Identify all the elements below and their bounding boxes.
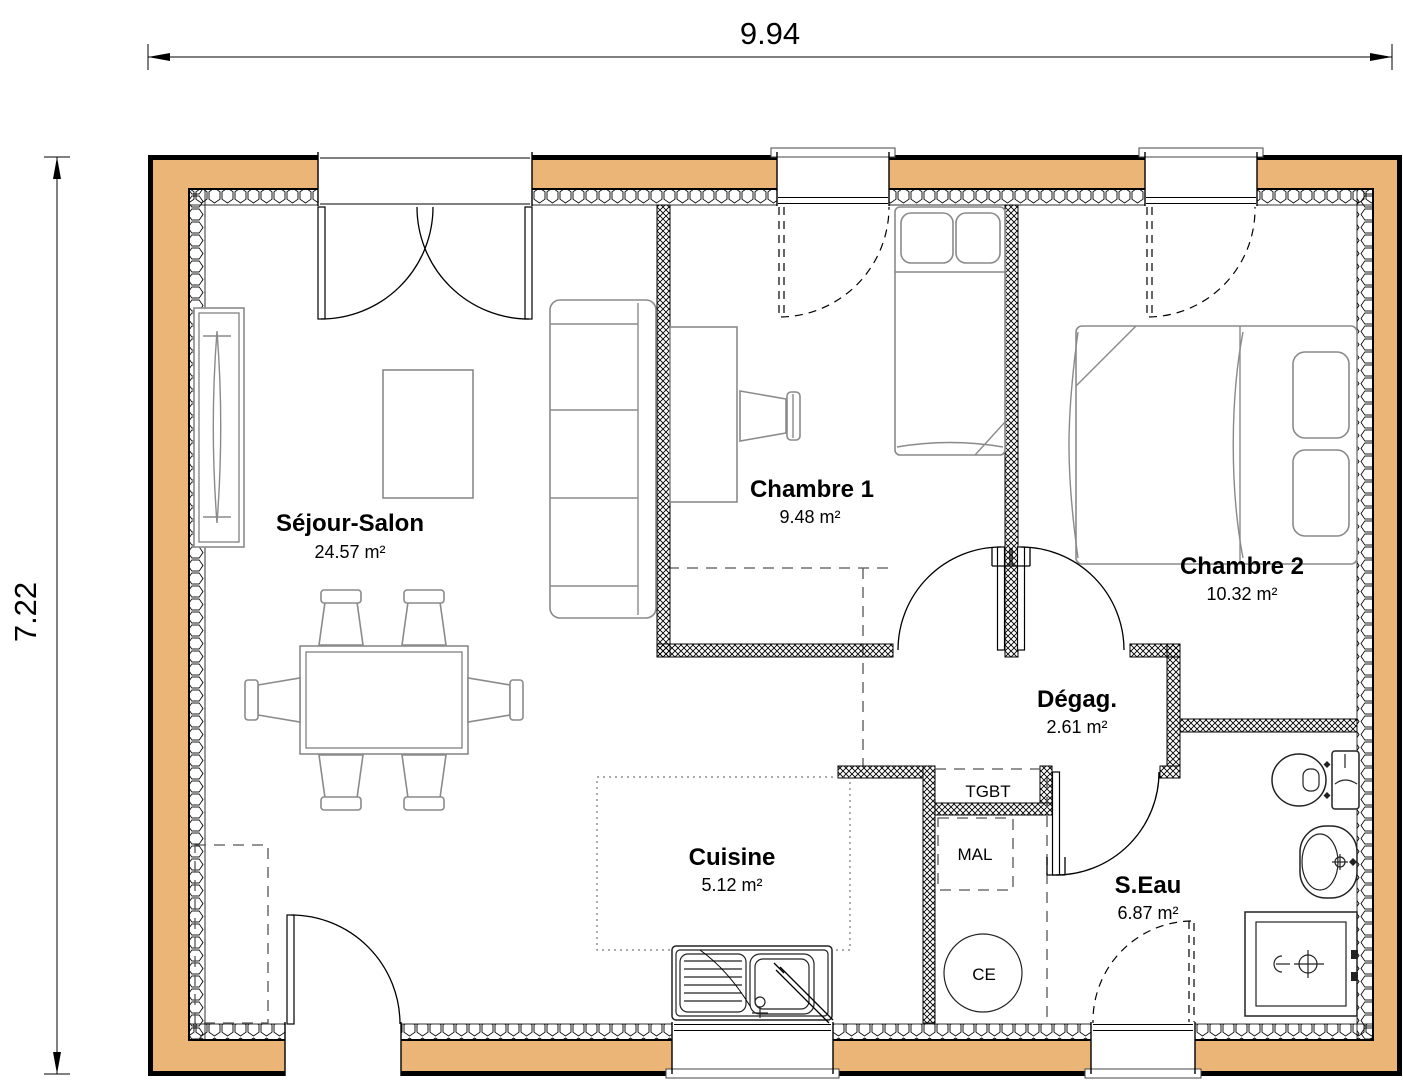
window-sill-seau [1085,1069,1201,1078]
room-area-cuisine: 5.12 m² [701,875,762,895]
partition-cuisine-tech [923,766,935,1023]
dining-chair [402,590,446,645]
dashed-guides [668,568,893,766]
partition-seau-door-jamb-right [1160,766,1180,778]
window-sill-chambre1 [771,148,895,157]
opening-window-chambre2 [1145,150,1257,207]
opening-entrance-door [285,1022,401,1078]
width-dim-arrow-right [1370,53,1392,61]
wall-band-left [148,155,189,1076]
tv-cabinet [194,308,244,547]
door-salle-eau [1047,772,1159,875]
partition-degagement-east [1167,644,1180,766]
room-area-sejour: 24.57 m² [314,542,385,562]
sofa [550,300,656,618]
dining-chair [402,755,446,810]
room-label-sejour: Séjour-Salon [276,510,424,537]
room-label-chambre1: Chambre 1 [750,476,874,503]
fixtures [672,751,1359,1020]
opening-french-door [318,150,532,207]
partition-sejour-chambre1 [657,205,670,657]
room-label-cuisine: Cuisine [689,844,776,871]
door-chambre1 [898,547,1010,650]
window-swing-chambre2 [1147,207,1255,317]
desk-chambre1 [670,327,737,502]
dining-table [300,646,468,754]
partition-cuisine-degagement [838,766,923,778]
shower [1245,912,1358,1016]
toilet [1272,751,1359,809]
height-dim-arrow-bottom [53,1052,61,1074]
label-washing-machine: MAL [958,845,993,864]
desk-chair-chambre1 [740,391,800,441]
placard-dashed [195,845,268,1023]
bed-single-chambre1 [895,207,1005,455]
window-sill-chambre2 [1139,148,1263,157]
label-water-heater: CE [972,965,996,984]
window-swing-seau [1093,921,1194,1023]
dining-chair [319,755,363,810]
window-sill-cuisine [666,1069,839,1078]
insulation-right [1357,189,1373,1040]
dining-chair [468,678,523,722]
dining-chair [245,678,300,722]
room-label-chambre2: Chambre 2 [1180,553,1304,580]
width-dimension-label: 9.94 [740,16,800,51]
room-area-chambre2: 10.32 m² [1206,584,1277,604]
room-area-degagement: 2.61 m² [1046,717,1107,737]
width-dim-arrow-left [148,53,170,61]
height-dim-arrow-top [53,157,61,179]
bed-double-chambre2 [1069,326,1357,564]
partition-tgbt-south [935,803,1052,815]
room-label-degagement: Dégag. [1037,686,1117,713]
room-area-seau: 6.87 m² [1117,903,1178,923]
label-electrical-panel: TGBT [965,782,1010,801]
partition-chambre1-south [657,644,893,657]
window-swing-chambre1 [779,207,889,317]
height-dimension-label: 7.22 [8,582,43,642]
partition-chambre1-chambre2 [1005,205,1018,657]
coffee-table [383,370,473,498]
room-label-seau: S.Eau [1115,872,1182,899]
partition-chambre2-seau [1180,719,1357,732]
kitchen-sink [672,946,832,1020]
dining-chair [319,590,363,645]
partition-seau-door-jamb-left [1040,766,1052,803]
french-door-sejour [318,207,532,319]
floor-plan: 9.94 7.22 [0,0,1403,1080]
entrance-door [287,915,400,1024]
room-area-chambre1: 9.48 m² [779,507,840,527]
washbasin [1300,826,1357,898]
opening-window-chambre1 [777,150,889,207]
